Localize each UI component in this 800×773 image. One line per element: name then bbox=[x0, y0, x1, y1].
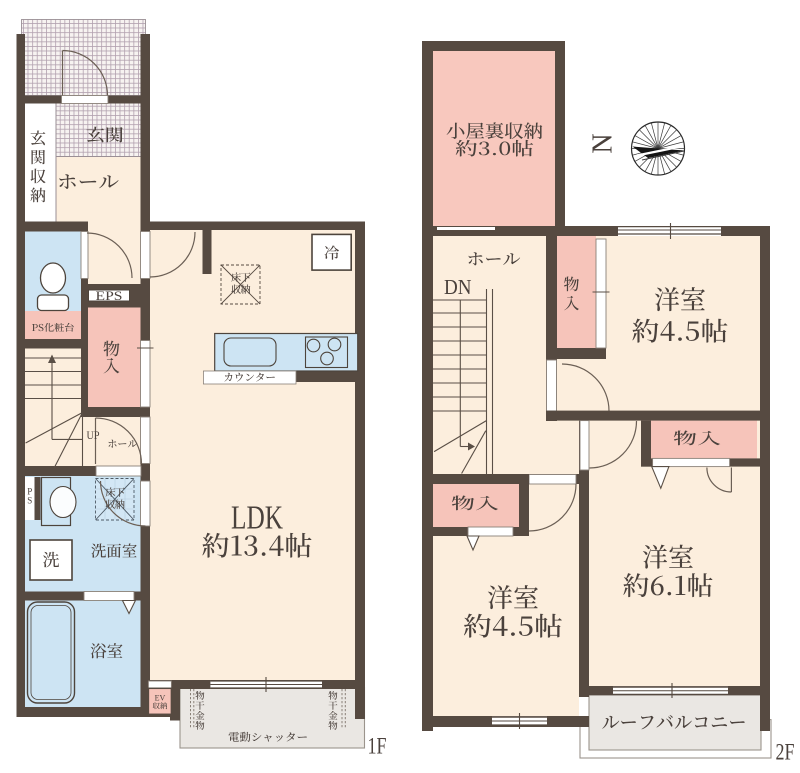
svg-text:2F: 2F bbox=[776, 740, 795, 765]
svg-text:UP: UP bbox=[87, 428, 100, 442]
svg-text:1F: 1F bbox=[368, 734, 387, 759]
svg-text:EV: EV bbox=[155, 694, 166, 703]
svg-text:EPS: EPS bbox=[96, 288, 123, 303]
svg-text:DN: DN bbox=[444, 275, 472, 299]
svg-text:LDK: LDK bbox=[231, 500, 283, 537]
svg-text:S: S bbox=[27, 496, 32, 506]
svg-text:N: N bbox=[588, 133, 619, 153]
